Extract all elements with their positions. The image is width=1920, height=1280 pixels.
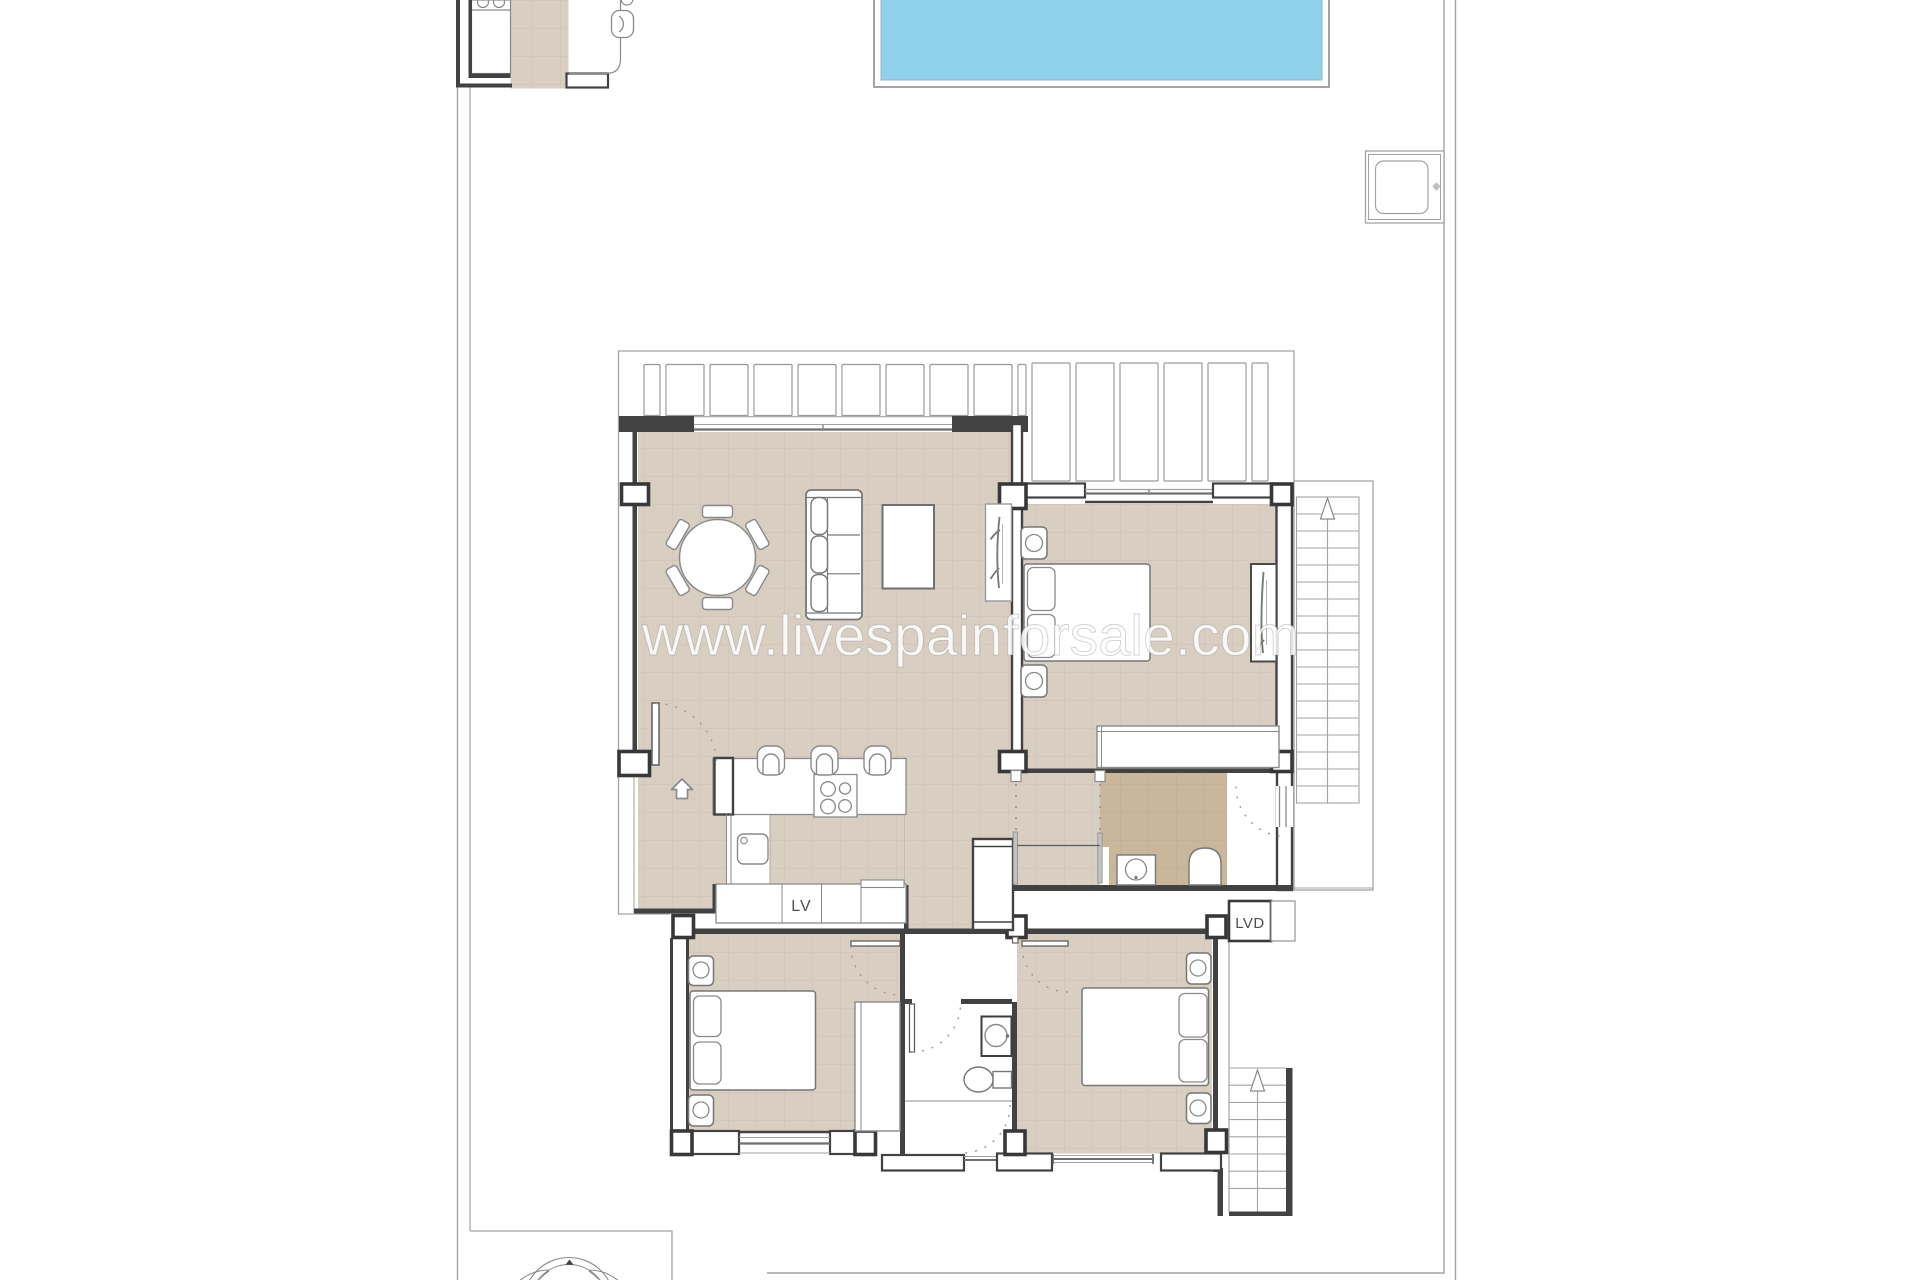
svg-text:LVD: LVD	[1235, 915, 1265, 932]
svg-text:www.livespainforsale.com: www.livespainforsale.com	[641, 604, 1299, 668]
svg-text:LV: LV	[791, 898, 811, 915]
